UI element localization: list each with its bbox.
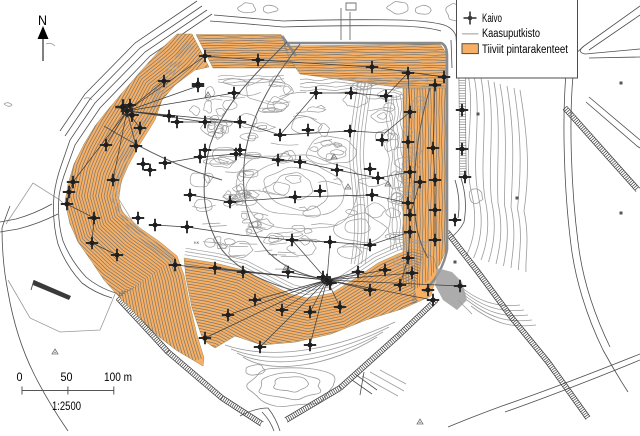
svg-text:100 m: 100 m	[104, 372, 132, 384]
svg-text:N: N	[38, 12, 47, 28]
svg-text:Tiiviit pintarakenteet: Tiiviit pintarakenteet	[482, 44, 569, 56]
svg-text:50: 50	[61, 372, 73, 384]
svg-text:1:2500: 1:2500	[52, 401, 81, 413]
svg-text:Kaivo: Kaivo	[482, 13, 502, 25]
svg-text:rm: rm	[272, 252, 277, 257]
svg-text:Kaasuputkisto: Kaasuputkisto	[482, 28, 540, 40]
svg-text:0: 0	[17, 372, 23, 384]
svg-text:KK: KK	[194, 240, 200, 245]
